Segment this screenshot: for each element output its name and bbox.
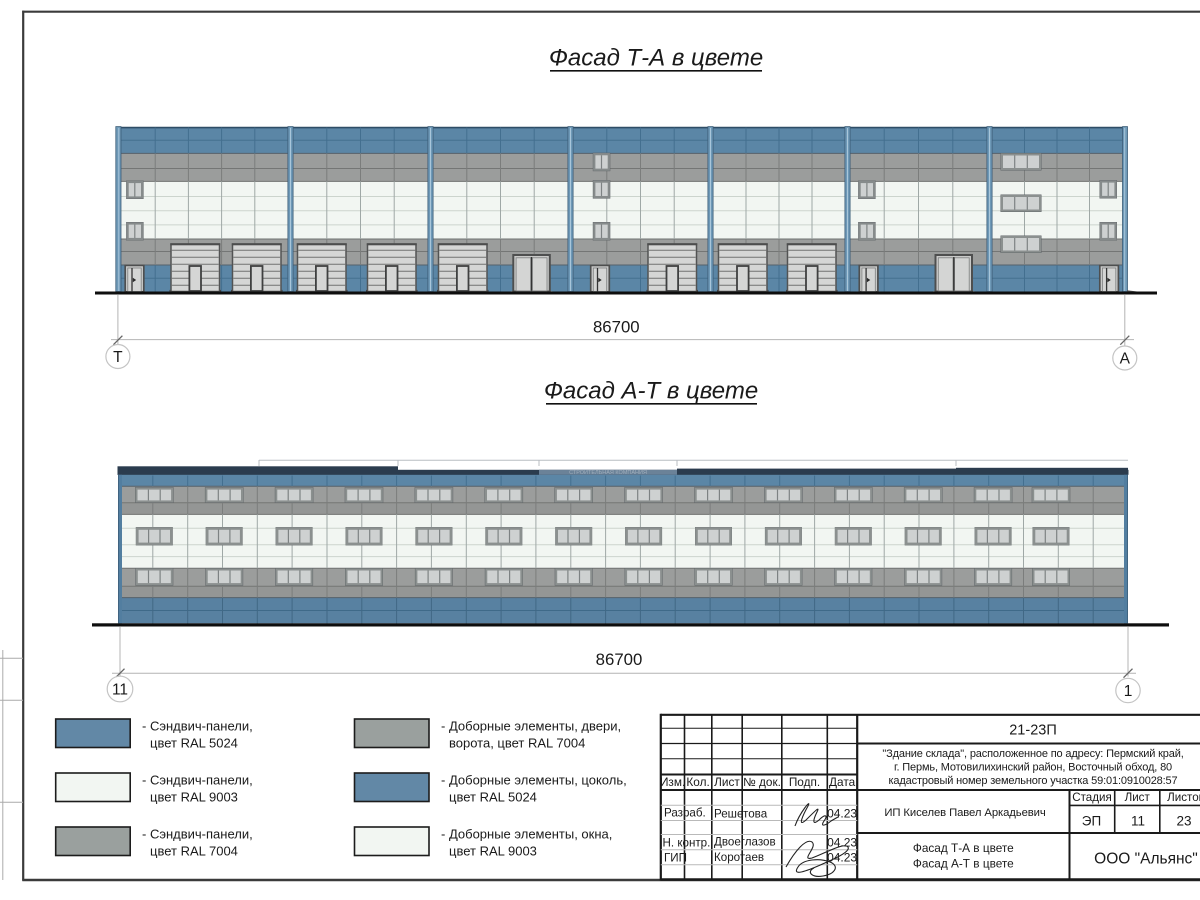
- svg-text:цвет RAL 9003: цвет RAL 9003: [150, 790, 238, 805]
- svg-text:Подп.: Подп.: [789, 775, 820, 789]
- svg-text:цвет RAL 5024: цвет RAL 5024: [449, 790, 537, 805]
- svg-text:Фасад А-Т в цвете: Фасад А-Т в цвете: [913, 856, 1014, 870]
- svg-text:Лист: Лист: [714, 775, 740, 789]
- svg-text:Кол.: Кол.: [686, 775, 709, 789]
- svg-text:1: 1: [1124, 683, 1133, 700]
- svg-text:04.23: 04.23: [827, 807, 857, 821]
- svg-text:Фасад Т-А в цвете: Фасад Т-А в цвете: [913, 841, 1014, 855]
- svg-text:86700: 86700: [596, 650, 643, 669]
- svg-text:Листов: Листов: [1167, 791, 1200, 804]
- svg-text:А: А: [1120, 351, 1131, 368]
- svg-text:Стадия: Стадия: [1072, 791, 1112, 804]
- svg-text:Дата: Дата: [829, 775, 856, 789]
- svg-text:Решетова: Решетова: [714, 808, 768, 821]
- svg-text:11: 11: [112, 682, 128, 699]
- svg-text:"Здание склада", расположенное: "Здание склада", расположенное по адресу…: [882, 748, 1183, 760]
- svg-text:11: 11: [1131, 813, 1145, 828]
- svg-text:- Сэндвич-панели,: - Сэндвич-панели,: [142, 827, 253, 842]
- svg-text:Двоеглазов: Двоеглазов: [714, 836, 776, 849]
- svg-text:Н. контр.: Н. контр.: [663, 836, 711, 849]
- svg-text:04.23: 04.23: [827, 835, 857, 849]
- svg-text:ГИП: ГИП: [664, 851, 687, 864]
- svg-text:Изм.: Изм.: [660, 775, 685, 789]
- svg-text:Лист: Лист: [1125, 791, 1151, 804]
- svg-text:Коротаев: Коротаев: [714, 851, 764, 864]
- svg-text:ЭП: ЭП: [1082, 813, 1101, 828]
- svg-text:Фасад Т-А в цвете: Фасад Т-А в цвете: [549, 45, 763, 72]
- svg-text:- Доборные элементы, двери,: - Доборные элементы, двери,: [441, 719, 621, 734]
- svg-text:№ док.: № док.: [743, 775, 781, 789]
- svg-text:кадастровый номер земельного у: кадастровый номер земельного участка 59:…: [889, 775, 1178, 787]
- svg-text:Т: Т: [113, 349, 123, 366]
- svg-text:ворота, цвет RAL 7004: ворота, цвет RAL 7004: [449, 736, 585, 751]
- svg-text:Разраб.: Разраб.: [664, 807, 706, 820]
- svg-text:ИП Киселев Павел Аркадьевич: ИП Киселев Павел Аркадьевич: [884, 807, 1046, 819]
- svg-text:цвет RAL 9003: цвет RAL 9003: [449, 844, 537, 859]
- svg-text:- Доборные элементы, окна,: - Доборные элементы, окна,: [441, 827, 612, 842]
- svg-text:цвет RAL 7004: цвет RAL 7004: [150, 844, 238, 859]
- svg-text:21-23П: 21-23П: [1009, 723, 1057, 739]
- svg-text:23: 23: [1176, 813, 1191, 828]
- svg-text:цвет RAL 5024: цвет RAL 5024: [150, 736, 238, 751]
- svg-text:- Сэндвич-панели,: - Сэндвич-панели,: [142, 773, 253, 788]
- svg-text:- Сэндвич-панели,: - Сэндвич-панели,: [142, 719, 253, 734]
- svg-text:ООО "Альянс": ООО "Альянс": [1094, 851, 1198, 868]
- svg-text:Фасад А-Т в цвете: Фасад А-Т в цвете: [544, 378, 758, 405]
- svg-text:86700: 86700: [593, 317, 640, 336]
- svg-text:- Доборные элементы, цоколь,: - Доборные элементы, цоколь,: [441, 773, 627, 788]
- svg-text:г. Пермь, Мотовилихинский райо: г. Пермь, Мотовилихинский район, Восточн…: [894, 762, 1172, 774]
